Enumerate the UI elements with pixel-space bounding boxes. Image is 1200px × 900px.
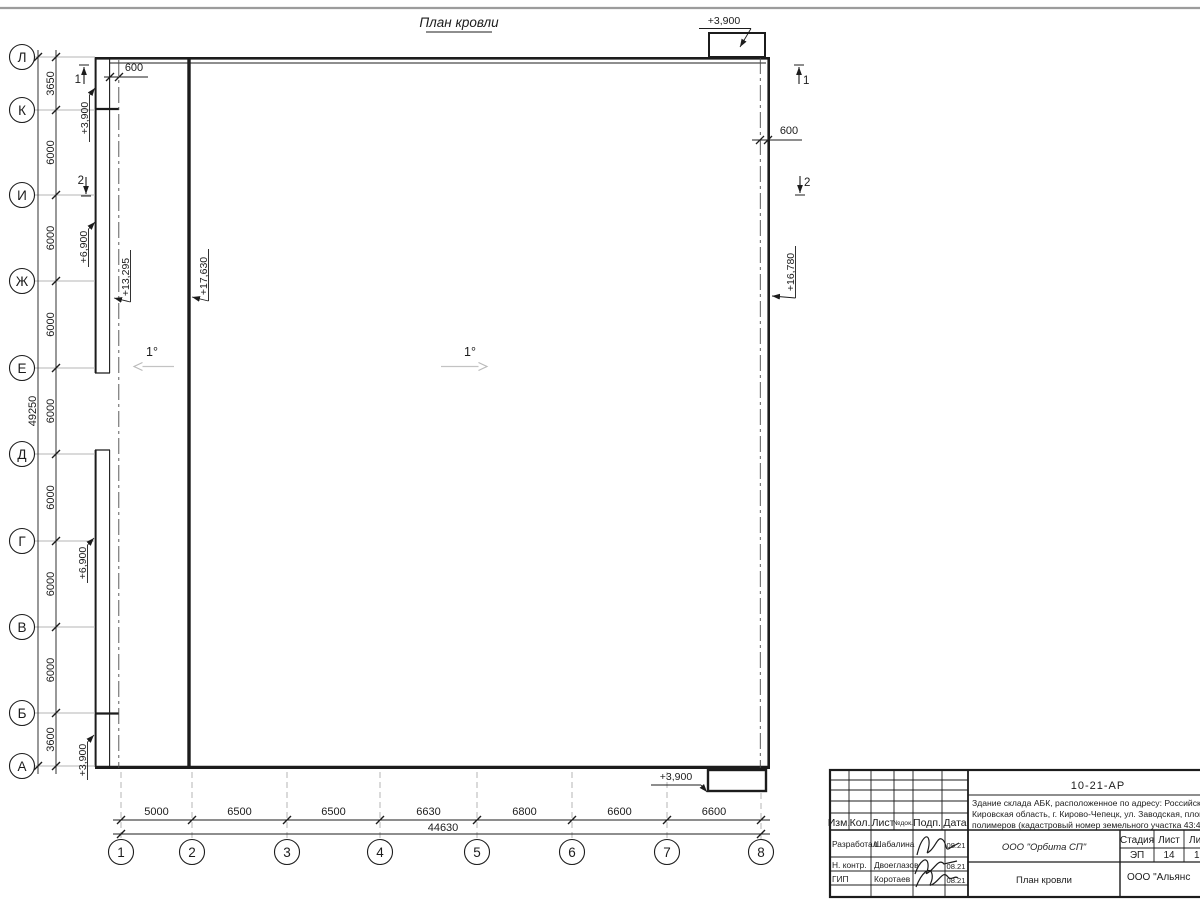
tb-address-line3: полимеров (кадастровый номер земельного … bbox=[972, 820, 1200, 830]
axis-label: А bbox=[17, 759, 26, 774]
total-dim-text: 44630 bbox=[428, 822, 459, 834]
axis-grid-bottom: 1 2 3 4 5 6 7 8 5000 6500 6500 6630 6800… bbox=[109, 772, 774, 865]
elev-left-gv: +6,900 bbox=[77, 538, 94, 583]
axis-label: 3 bbox=[283, 845, 291, 860]
axis-label: Ж bbox=[16, 274, 29, 289]
section2-left-label: 2 bbox=[78, 175, 84, 187]
tb-sheet-title: План кровли bbox=[1016, 875, 1072, 886]
left-wall-caps bbox=[95, 373, 110, 450]
elev-arrow bbox=[89, 222, 96, 229]
dim-text: 6000 bbox=[45, 140, 57, 164]
elev-arrow bbox=[88, 735, 95, 742]
tb-bottom-company: ООО "Альянс bbox=[1127, 872, 1190, 883]
page-title: План кровли bbox=[419, 15, 499, 30]
tb-role: Разработал bbox=[832, 839, 878, 849]
offset-dims: 600 600 bbox=[104, 62, 802, 144]
section1-left-label: 1 bbox=[75, 74, 81, 86]
elev-arrow bbox=[740, 29, 751, 48]
bottom-canopy bbox=[708, 770, 766, 791]
tb-role: ГИП bbox=[832, 874, 849, 884]
axis-label: К bbox=[18, 103, 26, 118]
elev-top-right: +3,900 bbox=[699, 15, 751, 47]
dim-text: 3650 bbox=[45, 71, 57, 95]
dim-text: 6800 bbox=[512, 806, 536, 818]
tb-address-line1: Здание склада АБК, расположенное по адре… bbox=[972, 798, 1200, 808]
dim-text: 5000 bbox=[144, 806, 168, 818]
tb-company: ООО "Орбита СП" bbox=[1002, 842, 1087, 853]
dim-text: 6630 bbox=[416, 806, 440, 818]
dim-text: 6500 bbox=[227, 806, 251, 818]
title-block: Изм. Кол. Лист №док. Подп. Дата Разработ… bbox=[828, 770, 1200, 897]
elev-right-roof: +16,780 bbox=[772, 246, 797, 298]
axis-label: 2 bbox=[188, 845, 196, 860]
tb-sheet-label: Лист bbox=[1158, 835, 1180, 846]
axis-label: Л bbox=[18, 50, 27, 65]
elev-text: +3,900 bbox=[708, 15, 741, 27]
tb-name: Двоеглазов bbox=[874, 860, 919, 870]
axis-label: Г bbox=[18, 534, 26, 549]
elev-arrow bbox=[701, 785, 707, 792]
section2-right-label: 2 bbox=[804, 177, 810, 189]
tb-col-list: Лист bbox=[872, 817, 895, 829]
offset-left-text: 600 bbox=[125, 62, 143, 74]
tb-name: Коротаев bbox=[874, 874, 911, 884]
elev-low-roof: +13,295 bbox=[114, 250, 132, 302]
signature-1 bbox=[917, 837, 959, 855]
tb-col-ndok: №док. bbox=[893, 820, 913, 827]
slope-center-label: 1° bbox=[464, 345, 476, 359]
axis-label: Д bbox=[17, 447, 26, 462]
top-canopy bbox=[709, 33, 765, 57]
axis-label: 1 bbox=[117, 845, 125, 860]
elev-left-a: +3,900 bbox=[77, 735, 94, 780]
slope-left-label: 1° bbox=[146, 345, 158, 359]
tb-name: Шабалина bbox=[874, 839, 915, 849]
axis-label: Б bbox=[18, 706, 27, 721]
axis-grid-left: Л К И Ж Е Д Г В Б А 3650 6000 6000 6000 … bbox=[10, 45, 96, 779]
dim-text: 6600 bbox=[702, 806, 726, 818]
tb-sheets-label: Листов bbox=[1189, 835, 1200, 846]
tb-address-line2: Кировская область, г. Кирово-Чепецк, ул.… bbox=[972, 809, 1200, 819]
dim-text: 3600 bbox=[45, 727, 57, 751]
tb-sheets-value: 1 bbox=[1194, 850, 1200, 861]
offset-right-text: 600 bbox=[780, 125, 798, 137]
dim-text: 6500 bbox=[321, 806, 345, 818]
elevation-marks: +3,900 +3,900 +3,900 +6,900 +6,900 +3,90… bbox=[77, 15, 797, 792]
axis-label: 8 bbox=[757, 845, 765, 860]
axis-label: 6 bbox=[568, 845, 576, 860]
drawing-title: План кровли bbox=[419, 15, 499, 32]
axis-label: 7 bbox=[663, 845, 671, 860]
dim-text: 6000 bbox=[45, 658, 57, 682]
dim-text: 6000 bbox=[45, 485, 57, 509]
axis-label: И bbox=[17, 188, 27, 203]
tb-role: Н. контр. bbox=[832, 860, 867, 870]
building-outline bbox=[95, 33, 770, 791]
elev-arrow bbox=[114, 298, 131, 302]
slope-marks: 1° 1° bbox=[134, 345, 487, 367]
dim-text: 6000 bbox=[45, 312, 57, 336]
section-marks: 1 2 1 2 bbox=[75, 65, 811, 196]
roof-plan-sheet: План кровли Л К И Ж Е Д bbox=[0, 0, 1200, 900]
left-axis-extension-lines bbox=[34, 57, 95, 766]
tb-col-data: Дата bbox=[943, 817, 966, 829]
tb-col-kol: Кол. bbox=[850, 817, 871, 829]
elev-left-k: +3,900 bbox=[79, 88, 95, 142]
dim-text: 6000 bbox=[45, 572, 57, 596]
elev-bottom-right: +3,900 bbox=[651, 771, 707, 792]
elev-arrow bbox=[90, 88, 96, 95]
section1-right-label: 1 bbox=[803, 75, 809, 87]
elev-arrow bbox=[772, 296, 796, 298]
tb-stage-value: ЭП bbox=[1130, 850, 1144, 861]
elev-arrow bbox=[192, 297, 209, 301]
axis-label: Е bbox=[17, 361, 26, 376]
axis-label: 4 bbox=[376, 845, 384, 860]
tb-doc-number: 10-21-АР bbox=[1071, 780, 1125, 792]
tb-col-podp: Подп. bbox=[913, 817, 941, 829]
total-dim-text: 49250 bbox=[27, 396, 39, 427]
axis-label: 5 bbox=[473, 845, 481, 860]
tb-revision-rows bbox=[830, 780, 968, 813]
elev-text: +3,900 bbox=[660, 771, 693, 783]
dim-text: 6000 bbox=[45, 226, 57, 250]
dim-text: 6600 bbox=[607, 806, 631, 818]
axis-label: В bbox=[17, 620, 26, 635]
elev-high-roof: +17,630 bbox=[192, 249, 210, 301]
tb-sheet-value: 14 bbox=[1163, 850, 1175, 861]
tb-col-izm: Изм. bbox=[828, 817, 851, 829]
dim-text: 6000 bbox=[45, 399, 57, 423]
elev-left-izh: +6,900 bbox=[78, 222, 95, 267]
tb-stage-label: Стадия bbox=[1120, 835, 1154, 846]
